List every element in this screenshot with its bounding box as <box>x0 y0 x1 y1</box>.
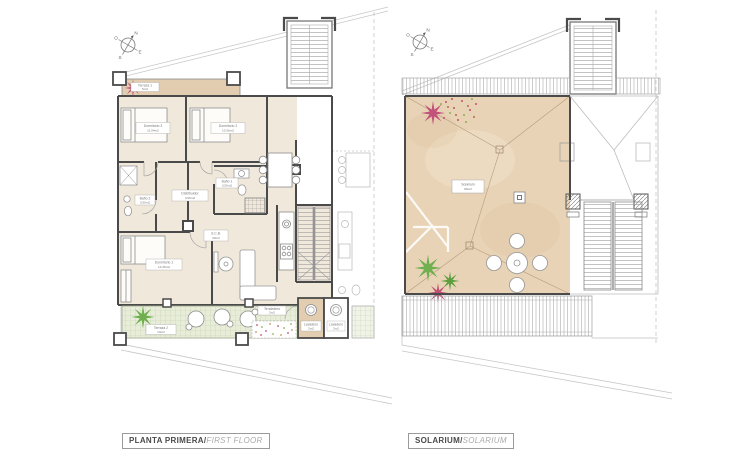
room-label-dormitorio3: Dormitorio 3 11.04m2 <box>136 123 170 134</box>
room-label-tendedero: Tendedero 2m2 <box>258 306 286 315</box>
room-label-solarium: Solarium 80m2 <box>452 180 484 193</box>
floorplan-drawing: N E S O <box>0 0 756 456</box>
svg-text:11.04m2: 11.04m2 <box>147 128 159 132</box>
svg-text:3.50m2: 3.50m2 <box>140 200 151 204</box>
lavadero-block <box>298 298 348 338</box>
compass-e: E <box>430 47 433 52</box>
room-label-lavadero2: Lavadero 2m2 <box>327 321 345 331</box>
gravel-patch <box>252 321 296 338</box>
floor-plan-first-floor: N E S O <box>113 7 392 404</box>
left-plan-title-secondary: FIRST FLOOR <box>206 436 262 445</box>
svg-text:2m2: 2m2 <box>333 326 339 330</box>
palm-plant-icon <box>415 255 442 282</box>
solarium-surface <box>405 95 574 303</box>
room-label-lavadero1: Lavadero 2m2 <box>301 321 321 331</box>
room-label-dormitorio1: Dormitorio 1 14.36m2 <box>146 259 182 270</box>
svg-text:Solarium: Solarium <box>461 183 475 187</box>
compass-e: E <box>138 50 141 55</box>
floorplan-sheet: N E S O <box>0 0 756 456</box>
svg-text:13m2: 13m2 <box>157 330 165 334</box>
compass-rose-right: N E S O <box>406 28 433 58</box>
kitchen-fixtures <box>279 212 294 270</box>
roof-stair-bulkhead-right <box>567 19 619 94</box>
compass-n: N <box>134 31 137 36</box>
compass-s: S <box>118 55 121 60</box>
left-plan-title-primary: PLANTA PRIMERA/ <box>129 436 206 445</box>
north-arrow-icon <box>423 32 426 35</box>
svg-text:80m2: 80m2 <box>464 187 472 191</box>
svg-text:10.36m2: 10.36m2 <box>222 128 234 132</box>
floor-plan-solarium: N E S O <box>402 10 672 399</box>
tv-unit <box>214 252 218 272</box>
room-label-bano1: Baño 1 3.50m2 <box>216 178 238 188</box>
svg-text:3.50m2: 3.50m2 <box>222 183 233 187</box>
left-plan-title: PLANTA PRIMERA/FIRST FLOOR <box>122 433 270 449</box>
room-label-distribuidor: Distribuidor 3.56m2 <box>172 190 208 201</box>
roof-drain-icon <box>514 192 525 203</box>
pergola-strip <box>402 296 658 338</box>
compass-rose-left: N E S O <box>114 31 141 61</box>
roof-stair-bulkhead-left <box>284 18 335 88</box>
right-plan-title: SOLARIUM/SOLARIUM <box>408 433 514 449</box>
compass-s: S <box>410 52 413 57</box>
room-label-bano2: Baño 2 3.50m2 <box>135 195 155 205</box>
room-label-terraza1: Terraza 1 5m2 <box>131 83 159 92</box>
staircase-right-plan <box>566 194 648 290</box>
compass-n: N <box>426 28 429 33</box>
stair-landing-void <box>297 97 331 204</box>
washing-machine-icon <box>331 305 342 316</box>
compass-o: O <box>114 36 118 41</box>
room-label-scb: S.C.B. 30m2 <box>204 230 228 241</box>
north-arrow-icon <box>131 35 134 38</box>
svg-text:3.56m2: 3.56m2 <box>185 196 196 200</box>
roof-railing <box>402 78 660 94</box>
right-plan-title-secondary: SOLARIUM <box>463 436 507 445</box>
svg-text:14.36m2: 14.36m2 <box>158 265 170 269</box>
staircase-left-plan <box>298 207 330 280</box>
compass-o: O <box>406 33 410 38</box>
right-plan-title-primary: SOLARIUM/ <box>415 436 463 445</box>
svg-text:2m2: 2m2 <box>269 311 275 315</box>
svg-text:30m2: 30m2 <box>212 236 220 240</box>
svg-text:5m2: 5m2 <box>142 87 148 91</box>
dining-set <box>259 153 300 187</box>
svg-text:2m2: 2m2 <box>308 326 314 330</box>
washing-machine-icon <box>306 305 317 316</box>
room-label-dormitorio2: Dormitorio 2 10.36m2 <box>211 123 245 134</box>
room-label-terraza2: Terraza 2 13m2 <box>146 325 176 335</box>
